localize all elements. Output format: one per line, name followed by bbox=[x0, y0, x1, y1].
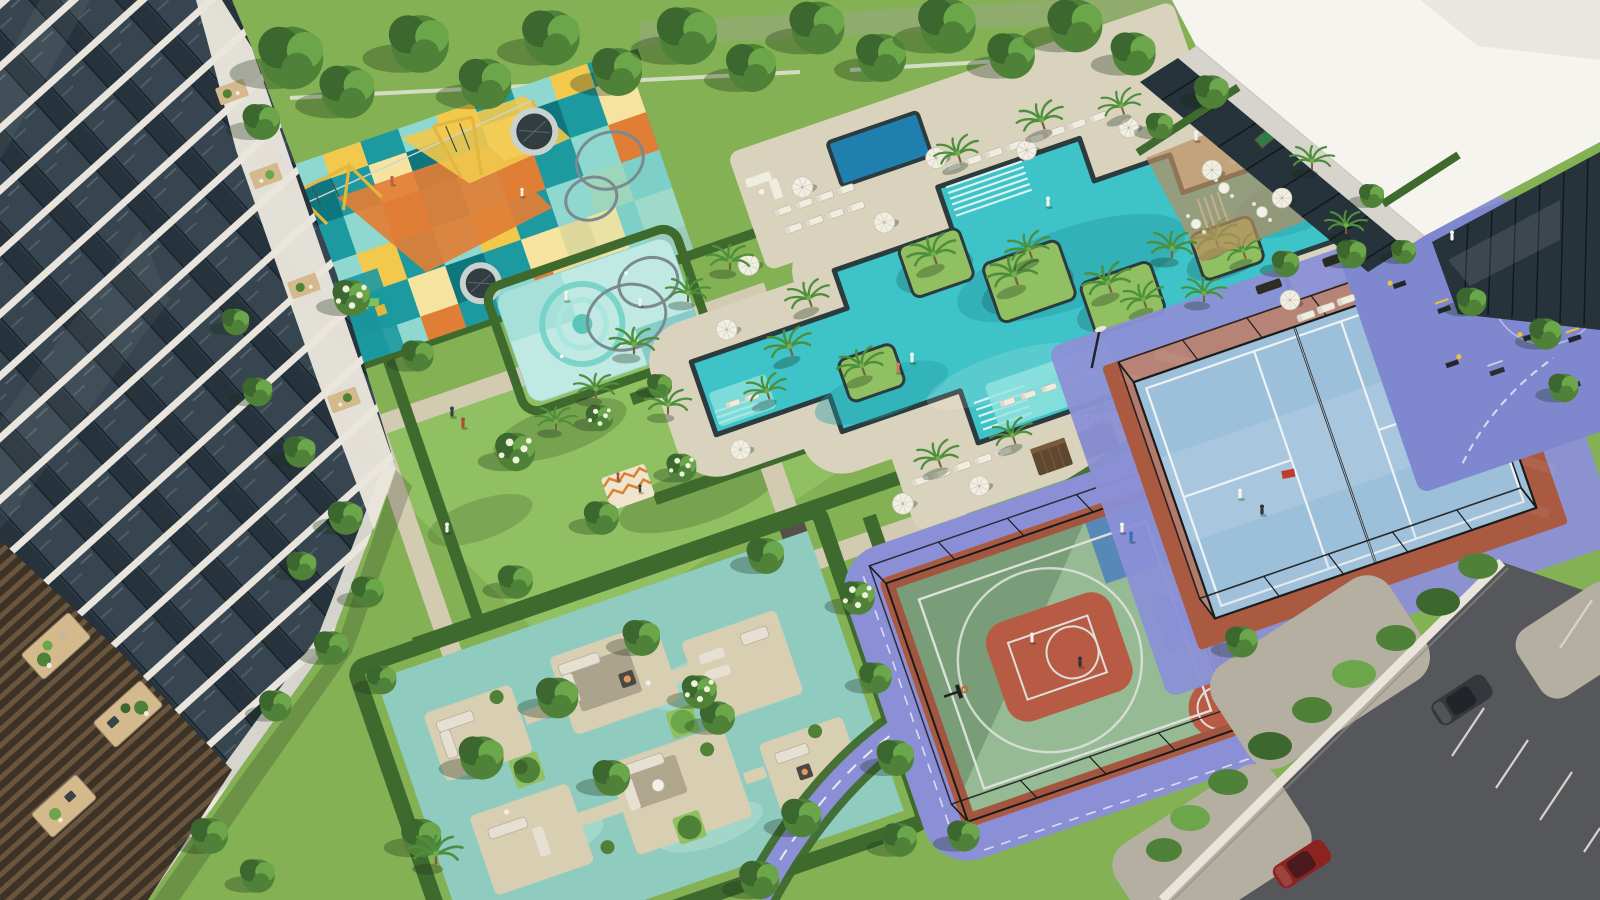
scene-svg bbox=[0, 0, 1600, 900]
aerial-render bbox=[0, 0, 1600, 900]
